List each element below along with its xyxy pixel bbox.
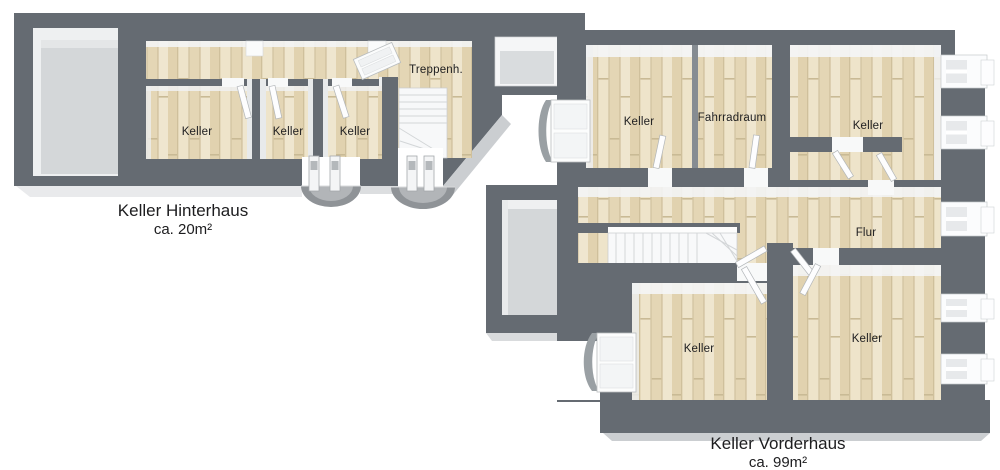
stairs-hinterhaus xyxy=(399,88,447,158)
partition-wall xyxy=(767,243,793,402)
room-label-keller: Keller xyxy=(182,126,213,138)
room-keller-hinterhaus-1 xyxy=(146,86,247,159)
stairs-vorderhaus xyxy=(608,227,737,267)
door-opening xyxy=(832,137,863,152)
room-fahrradraum xyxy=(698,45,772,168)
door-opening xyxy=(813,248,839,265)
room-concrete xyxy=(33,28,118,176)
door-opening xyxy=(332,78,352,87)
window xyxy=(941,294,994,322)
door-opening xyxy=(648,168,672,187)
hinterhaus-building: Keller Keller Keller Treppenh. Keller Hi… xyxy=(14,13,511,238)
room-label-keller: Keller xyxy=(852,333,883,345)
room-label-keller: Keller xyxy=(340,126,371,138)
door-opening xyxy=(868,180,894,195)
vorderhaus-caption: Keller Vorderhaus xyxy=(710,434,845,453)
vorderhaus-building: Keller Fahrradraum Keller Flur Keller Ke… xyxy=(539,30,995,470)
window xyxy=(941,354,994,384)
room-label-flur: Flur xyxy=(856,227,877,239)
courtyard-floor xyxy=(502,200,560,315)
room-label-keller: Keller xyxy=(853,120,884,132)
door-opening xyxy=(268,78,288,87)
floor-plan: Keller Keller Keller Treppenh. Keller Hi… xyxy=(0,0,1000,470)
hinterhaus-bottom-skirt xyxy=(16,186,302,197)
floor-plan-svg: Keller Keller Keller Treppenh. Keller Hi… xyxy=(0,0,1000,470)
room-label-fahrradraum: Fahrradraum xyxy=(698,112,767,124)
lightwell-niche xyxy=(495,37,559,86)
cellar-hatch-upper xyxy=(539,100,591,162)
window xyxy=(941,116,994,149)
entrance-passage xyxy=(398,148,443,188)
room-keller-vorderhaus-top-right xyxy=(790,45,941,180)
room-keller-vorderhaus-bottom-left xyxy=(632,283,767,400)
partition-wall xyxy=(692,45,698,168)
room-label-keller: Keller xyxy=(684,343,715,355)
room-label-keller: Keller xyxy=(273,126,304,138)
door-opening xyxy=(744,168,768,187)
partition-wall xyxy=(772,30,790,187)
hinterhaus-caption: Keller Hinterhaus xyxy=(118,201,248,220)
window xyxy=(941,55,994,88)
hinterhaus-area: ca. 20m² xyxy=(154,221,212,238)
window xyxy=(941,202,994,236)
corridor-wall-face xyxy=(146,41,472,47)
vorderhaus-area: ca. 99m² xyxy=(749,454,807,470)
cellar-hatch-lower xyxy=(584,333,636,392)
room-keller-vorderhaus-top-left xyxy=(586,45,692,168)
room-label-keller: Keller xyxy=(624,116,655,128)
entrance-steps xyxy=(391,187,455,209)
partition-wall xyxy=(382,77,398,159)
room-label-treppenhaus: Treppenh. xyxy=(409,64,463,76)
wall-niche xyxy=(246,41,263,56)
stair-wall xyxy=(560,263,737,281)
